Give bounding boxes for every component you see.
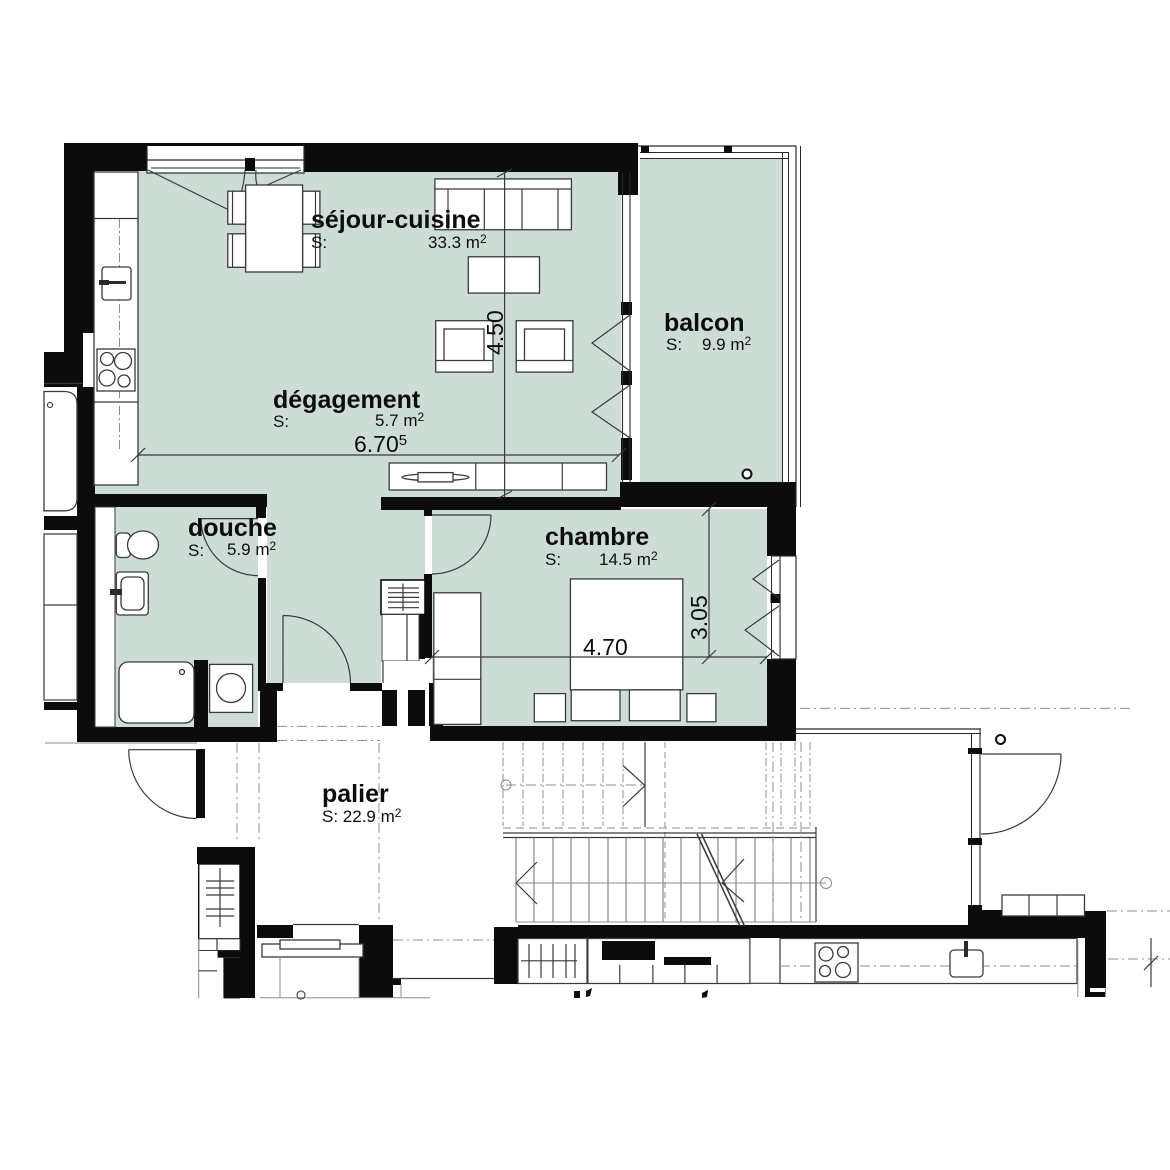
svg-text:5.7 m2: 5.7 m2 [375, 410, 425, 430]
svg-text:balcon: balcon [664, 309, 745, 337]
svg-text:chambre: chambre [545, 523, 649, 551]
svg-text:palier: palier [322, 780, 389, 808]
svg-text:4.50: 4.50 [482, 310, 508, 355]
svg-text:3.05: 3.05 [686, 595, 712, 640]
svg-text:9.9 m2: 9.9 m2 [702, 334, 752, 354]
svg-text:S:: S: [311, 233, 327, 252]
svg-text:douche: douche [188, 514, 277, 542]
svg-text:5.9 m2: 5.9 m2 [227, 539, 277, 559]
svg-text:S:: S: [666, 335, 682, 354]
svg-text:S: 22.9 m2: S: 22.9 m2 [322, 806, 402, 826]
svg-text:S:: S: [545, 550, 561, 569]
svg-text:33.3 m2: 33.3 m2 [428, 232, 487, 252]
svg-text:séjour-cuisine: séjour-cuisine [311, 206, 481, 234]
svg-text:4.70: 4.70 [583, 634, 628, 660]
svg-text:dégagement: dégagement [273, 386, 421, 414]
svg-text:14.5 m2: 14.5 m2 [599, 549, 658, 569]
svg-text:S:: S: [273, 412, 289, 431]
svg-text:S:: S: [188, 541, 204, 560]
